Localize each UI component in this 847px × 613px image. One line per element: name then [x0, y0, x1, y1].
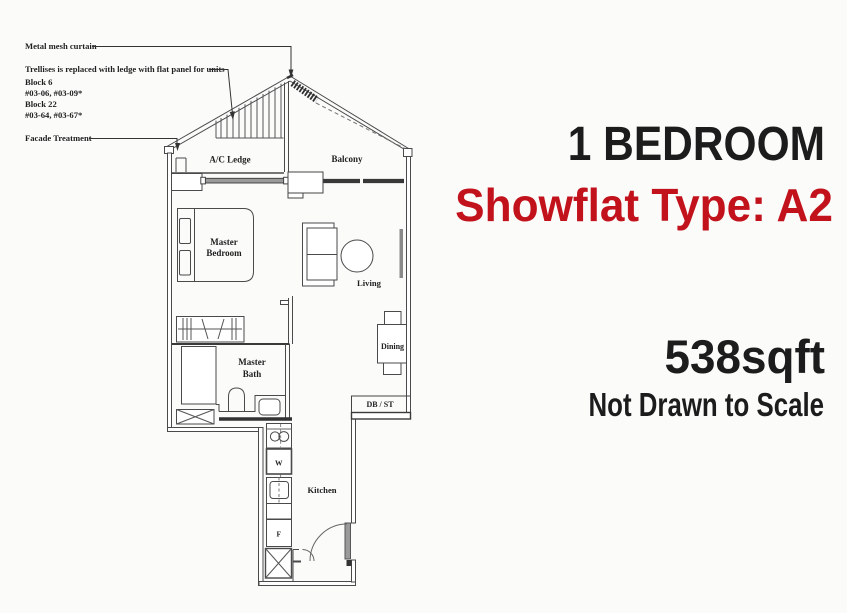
svg-text:#03-64, #03-67*: #03-64, #03-67* [25, 110, 82, 120]
svg-text:W: W [275, 459, 283, 468]
svg-text:Facade Treatment: Facade Treatment [25, 133, 92, 143]
svg-text:Kitchen: Kitchen [307, 485, 336, 495]
svg-text:DB / ST: DB / ST [366, 400, 394, 409]
svg-text:Metal mesh curtain: Metal mesh curtain [25, 41, 97, 51]
svg-text:Master: Master [210, 237, 237, 247]
svg-text:Block 6: Block 6 [25, 77, 53, 87]
svg-text:Balcony: Balcony [331, 154, 363, 164]
svg-text:Living: Living [357, 278, 382, 288]
svg-text:Dining: Dining [381, 342, 404, 351]
svg-text:Block 22: Block 22 [25, 99, 57, 109]
svg-text:Master: Master [238, 357, 265, 367]
svg-text:#03-06, #03-09*: #03-06, #03-09* [25, 88, 82, 98]
svg-text:Bedroom: Bedroom [206, 248, 242, 258]
svg-text:A/C Ledge: A/C Ledge [209, 155, 250, 165]
svg-text:Trellises is replaced with led: Trellises is replaced with ledge with fl… [25, 64, 225, 74]
svg-text:Bath: Bath [243, 369, 262, 379]
svg-text:F: F [277, 530, 282, 539]
